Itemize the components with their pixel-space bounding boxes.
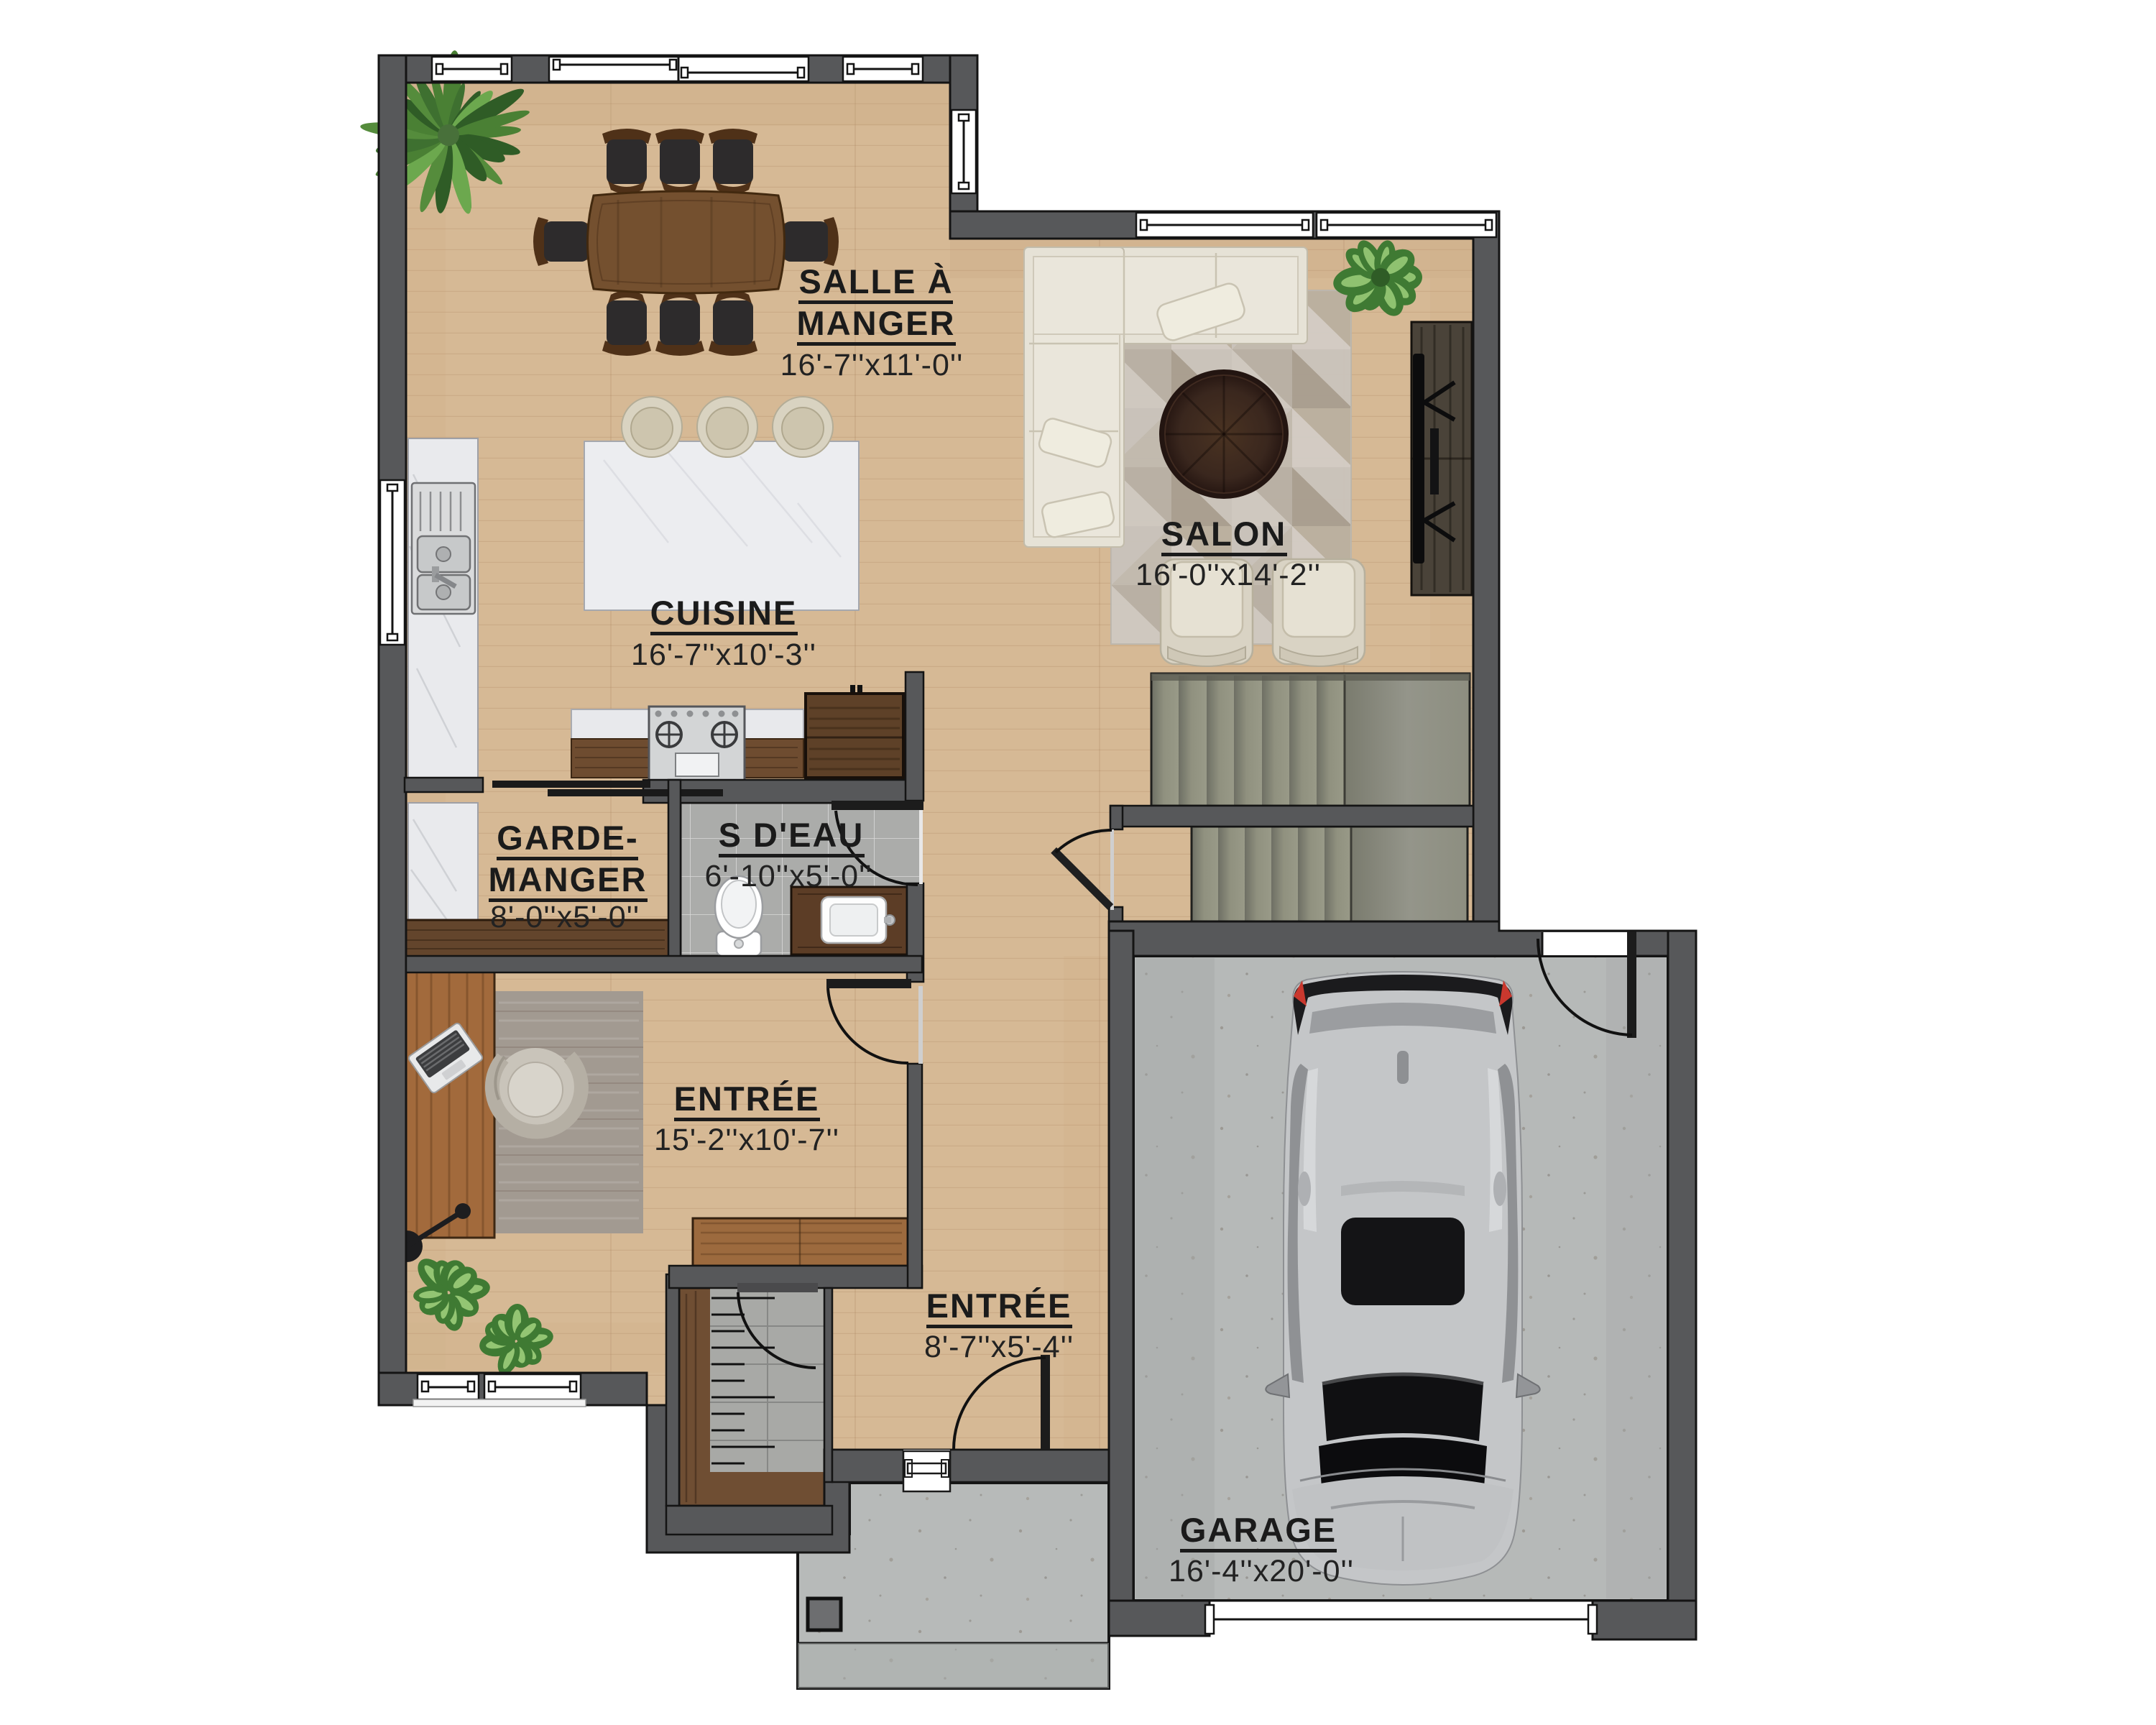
svg-text:MANGER: MANGER bbox=[797, 304, 956, 342]
svg-text:ENTRÉE: ENTRÉE bbox=[926, 1287, 1072, 1325]
svg-text:16'-7''x11'-0'': 16'-7''x11'-0'' bbox=[780, 348, 964, 382]
svg-text:GARAGE: GARAGE bbox=[1180, 1511, 1337, 1549]
svg-text:SALON: SALON bbox=[1161, 515, 1287, 553]
svg-text:8'-0''x5'-0'': 8'-0''x5'-0'' bbox=[490, 900, 640, 934]
svg-text:ENTRÉE: ENTRÉE bbox=[674, 1080, 820, 1118]
svg-text:16'-4''x20'-0'': 16'-4''x20'-0'' bbox=[1169, 1554, 1354, 1588]
svg-text:S D'EAU: S D'EAU bbox=[719, 816, 865, 854]
svg-text:GARDE-: GARDE- bbox=[497, 819, 638, 857]
svg-text:16'-7''x10'-3'': 16'-7''x10'-3'' bbox=[631, 638, 816, 672]
svg-text:16'-0''x14'-2'': 16'-0''x14'-2'' bbox=[1135, 558, 1321, 592]
svg-text:SALLE À: SALLE À bbox=[798, 262, 953, 300]
svg-text:6'-10''x5'-0'': 6'-10''x5'-0'' bbox=[705, 859, 872, 893]
svg-text:15'-2''x10'-7'': 15'-2''x10'-7'' bbox=[654, 1123, 839, 1157]
svg-text:CUISINE: CUISINE bbox=[650, 594, 798, 632]
svg-text:MANGER: MANGER bbox=[489, 860, 648, 898]
svg-text:8'-7''x5'-4'': 8'-7''x5'-4'' bbox=[924, 1330, 1074, 1364]
